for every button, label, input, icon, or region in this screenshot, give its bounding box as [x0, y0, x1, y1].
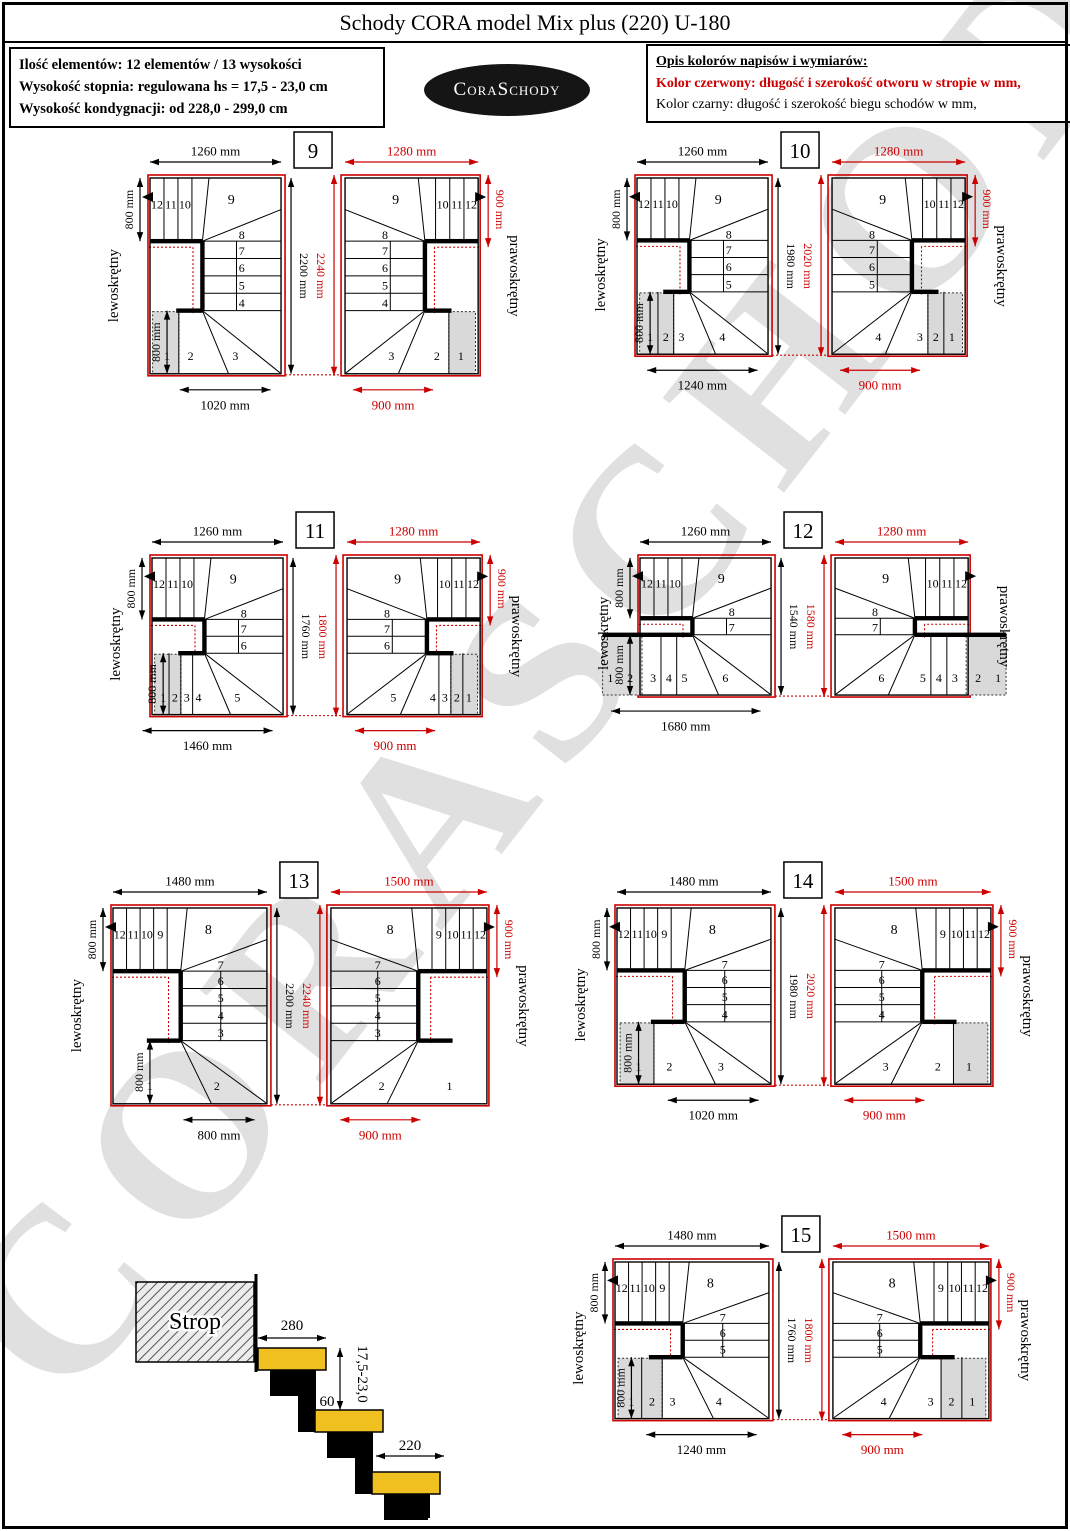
step-number: 2 — [935, 1060, 941, 1074]
entry-steps-shaded — [451, 654, 478, 714]
step-number: 3 — [952, 671, 958, 685]
stair-pair-svg-14: 1211109876541231480 mm800 mm800 mm1020 m… — [567, 860, 1041, 1130]
step-number: 8 — [869, 227, 875, 241]
step-number: 11 — [963, 1281, 975, 1295]
dim-top: 1280 mm — [387, 143, 436, 158]
step-number: 7 — [241, 622, 247, 636]
step-number: 4 — [875, 330, 881, 344]
step-number: 4 — [879, 1007, 885, 1021]
page-title: Schody CORA model Mix plus (220) U-180 — [339, 10, 730, 36]
step-number: 5 — [375, 991, 381, 1005]
step-number: 6 — [375, 974, 381, 988]
step-number: 4 — [430, 690, 436, 704]
step-number: 7 — [729, 621, 735, 635]
step-support — [327, 1430, 371, 1458]
step-number: 6 — [726, 260, 732, 274]
label: 2240 mm — [314, 253, 328, 299]
step-number: 2 — [948, 1394, 954, 1408]
step-number: 10 — [437, 198, 449, 212]
label: prawoskrętny — [508, 596, 524, 678]
step-number: 2 — [454, 690, 460, 704]
pair-number: 15 — [790, 1223, 811, 1247]
step-number: 11 — [165, 198, 177, 212]
step-number: 11 — [128, 928, 140, 942]
step-number: 4 — [382, 296, 388, 310]
dim-top: 1480 mm — [667, 1227, 716, 1242]
step-number: 6 — [720, 1326, 726, 1340]
dim-top: 1280 mm — [877, 523, 926, 538]
step-tread — [315, 1410, 383, 1432]
step-number: 5 — [722, 990, 728, 1004]
label: 800 mm — [145, 663, 159, 703]
step-number: 5 — [720, 1343, 726, 1357]
step-number: 11 — [630, 1281, 642, 1295]
info-box: Ilość elementów: 12 elementów / 13 wysok… — [9, 47, 385, 128]
step-number: 7 — [722, 957, 728, 971]
step-number: 3 — [883, 1060, 889, 1074]
step-number: 8 — [239, 228, 245, 242]
pair-number: 10 — [790, 139, 811, 163]
pair-number: 9 — [308, 139, 319, 163]
dim-60: 60 — [320, 1394, 335, 1410]
step-number: 7 — [382, 244, 388, 258]
label: 800 mm — [632, 303, 646, 343]
step-number: 8 — [205, 923, 212, 938]
entry-steps-shaded — [953, 1023, 987, 1084]
pair-number: 11 — [305, 519, 325, 543]
stair-pair-13: 1211109876543121480 mm800 mm800 mm800 mm… — [63, 860, 537, 1155]
dim-top: 1500 mm — [384, 874, 433, 889]
stair-diagram-right: 1211109876512341280 mm900 mm900 mmprawos… — [828, 144, 1009, 393]
step-number: 3 — [928, 1394, 934, 1408]
dim-top: 1260 mm — [678, 144, 727, 159]
step-number: 4 — [722, 1007, 728, 1021]
step-number: 6 — [877, 1326, 883, 1340]
pair-gap-dims: 1980 mm2020 mm10 — [772, 132, 828, 356]
step-number: 11 — [461, 928, 473, 942]
label: 800 mm — [132, 1052, 146, 1092]
label: lewoskrętny — [596, 596, 612, 670]
label: 1800 mm — [316, 614, 330, 660]
dim-bottom: 900 mm — [861, 1442, 904, 1457]
step-number: 7 — [877, 1310, 883, 1324]
label: 1540 mm — [787, 604, 801, 650]
step-number: 4 — [666, 671, 672, 685]
step-number: 2 — [663, 330, 669, 344]
step-number: 5 — [869, 277, 875, 291]
label: 2200 mm — [283, 983, 297, 1029]
label: 900 mm — [493, 190, 507, 230]
label: 900 mm — [1006, 919, 1020, 959]
step-number: 10 — [179, 198, 191, 212]
step-number: 6 — [218, 974, 224, 988]
step-number: 9 — [879, 193, 886, 208]
stair-pair-11: 1211109876123451260 mm800 mm800 mm1460 m… — [102, 510, 530, 766]
step-number: 7 — [218, 958, 224, 972]
step-number: 2 — [933, 330, 939, 344]
label: prawoskrętny — [506, 235, 522, 317]
stair-diagram-right: 1211109873456121280 mmprawoskrętny — [831, 523, 1012, 697]
step-number: 11 — [965, 927, 977, 941]
step-number: 6 — [722, 671, 728, 685]
label: 800 mm — [124, 568, 138, 608]
label: 800 mm — [587, 1272, 601, 1312]
step-number: 9 — [228, 193, 235, 208]
legend-black-line: Kolor czarny: długość i szerokość biegu … — [656, 94, 1066, 116]
dim-bottom: 1020 mm — [689, 1108, 738, 1123]
stair-diagram-right: 1211109876541231280 mm900 mm900 mmprawos… — [341, 143, 522, 412]
label: 900 mm — [495, 569, 509, 609]
label: 900 mm — [1004, 1273, 1018, 1313]
label: 800 mm — [612, 568, 626, 608]
step-number: 9 — [659, 1281, 665, 1295]
step-number: 9 — [157, 928, 163, 942]
dim-bottom: 900 mm — [863, 1108, 906, 1123]
step-tread — [258, 1348, 326, 1370]
step-number: 8 — [387, 923, 394, 938]
step-number: 3 — [218, 1026, 224, 1040]
step-number: 2 — [172, 690, 178, 704]
step-number: 5 — [877, 1343, 883, 1357]
step-number: 11 — [938, 197, 950, 211]
label: 900 mm — [980, 189, 994, 229]
dim-bottom: 900 mm — [374, 738, 417, 753]
step-number: 10 — [927, 576, 939, 590]
step-number: 3 — [442, 690, 448, 704]
stair-pair-15: 1211109876512341480 mm800 mm800 mm1240 m… — [565, 1214, 1039, 1470]
step-number: 8 — [891, 923, 898, 938]
step-number: 11 — [655, 576, 667, 590]
step-number: 9 — [392, 193, 399, 208]
step-number: 1 — [966, 1060, 972, 1074]
step-number: 10 — [645, 927, 657, 941]
step-number: 3 — [718, 1060, 724, 1074]
step-number: 8 — [872, 605, 878, 619]
dim-top: 1480 mm — [165, 874, 214, 889]
step-number: 2 — [649, 1394, 655, 1408]
step-number: 4 — [218, 1009, 224, 1023]
label: lewoskrętny — [106, 249, 122, 323]
step-number: 9 — [882, 572, 889, 587]
legend-box: Opis kolorów napisów i wymiarów: Kolor c… — [646, 44, 1070, 123]
label: 1580 mm — [804, 604, 818, 650]
step-number: 11 — [451, 198, 463, 212]
step-number: 10 — [666, 197, 678, 211]
step-number: 10 — [924, 197, 936, 211]
step-number: 6 — [869, 260, 875, 274]
stair-pair-12: 1211109873456121260 mm800 mm800 mm1680 m… — [590, 510, 1018, 746]
dim-280: 280 — [281, 1318, 304, 1334]
label: 1980 mm — [787, 973, 801, 1019]
label: 800 mm — [122, 189, 136, 229]
step-number: 5 — [879, 990, 885, 1004]
step-number: 8 — [729, 605, 735, 619]
stair-diagram-right: 1211109876123451280 mm900 mm900 mmprawos… — [343, 523, 524, 753]
dim-top: 1260 mm — [193, 523, 242, 538]
pair-number: 13 — [288, 869, 309, 893]
step-number: 3 — [650, 671, 656, 685]
stair-pair-10: 1211109876512341260 mm800 mm800 mm1240 m… — [587, 130, 1015, 405]
step-number: 7 — [879, 957, 885, 971]
step-number: 3 — [184, 690, 190, 704]
pair-number: 12 — [793, 519, 814, 543]
step-number: 5 — [726, 277, 732, 291]
entry-steps-shaded — [449, 312, 476, 374]
step-number: 7 — [375, 958, 381, 972]
label: 800 mm — [612, 644, 626, 684]
label: 2200 mm — [297, 253, 311, 299]
dim-top: 1500 mm — [886, 1227, 935, 1242]
step-number: 8 — [241, 606, 247, 620]
dim-top: 1280 mm — [389, 523, 438, 538]
step-number: 5 — [390, 690, 396, 704]
label: prawoskrętny — [1019, 955, 1035, 1037]
step-number: 8 — [726, 227, 732, 241]
step-number: 3 — [917, 330, 923, 344]
step-number: 1 — [446, 1079, 452, 1093]
dim-220: 220 — [399, 1438, 422, 1454]
step-number: 5 — [920, 671, 926, 685]
step-number: 5 — [218, 991, 224, 1005]
label: 800 mm — [149, 322, 163, 362]
pair-gap-dims: 1760 mm1800 mm15 — [773, 1216, 829, 1421]
title-bar: Schody CORA model Mix plus (220) U-180 — [5, 5, 1065, 43]
step-number: 10 — [447, 928, 459, 942]
label: 1800 mm — [802, 1318, 816, 1364]
step-number: 3 — [679, 330, 685, 344]
entry-steps-shaded — [928, 293, 963, 354]
label: 2020 mm — [804, 973, 818, 1019]
stair-diagram-left: 1211109876512341480 mm800 mm800 mm1240 m… — [571, 1227, 773, 1457]
label: 17,5-23,0 — [354, 1345, 370, 1403]
pair-number: 14 — [792, 869, 813, 893]
label: lewoskrętny — [573, 968, 589, 1042]
label: lewoskrętny — [108, 607, 124, 681]
step-number: 11 — [453, 577, 465, 591]
stair-pair-svg-11: 1211109876123451260 mm800 mm800 mm1460 m… — [102, 510, 530, 761]
stair-pair-svg-10: 1211109876512341260 mm800 mm800 mm1240 m… — [587, 130, 1015, 400]
logo-text: CoraSchody — [454, 79, 561, 101]
step-number: 10 — [181, 577, 193, 591]
step-number: 2 — [188, 349, 194, 363]
pair-gap-dims: 2200 mm2240 mm9 — [285, 132, 341, 376]
legend-red-line: Kolor czerwony: długość i szerokość otwo… — [656, 73, 1066, 95]
label: 800 mm — [589, 919, 603, 959]
step-number: 9 — [715, 193, 722, 208]
label: prawoskrętny — [996, 586, 1012, 668]
pair-gap-dims: 1540 mm1580 mm12 — [775, 512, 831, 697]
label: prawoskrętny — [1017, 1300, 1033, 1382]
step-number: 10 — [643, 1281, 655, 1295]
label: lewoskrętny — [69, 979, 85, 1053]
dim-bottom: 900 mm — [859, 378, 902, 393]
step-number: 8 — [709, 923, 716, 938]
label: 1980 mm — [784, 243, 798, 289]
step-number: 11 — [652, 197, 664, 211]
stair-diagram-left: 1211109876541231260 mm800 mm800 mm1020 m… — [106, 143, 285, 412]
step-number: 9 — [938, 1281, 944, 1295]
label: 800 mm — [85, 919, 99, 959]
step-number: 9 — [394, 573, 401, 588]
pair-gap-dims: 1760 mm1800 mm11 — [287, 512, 343, 717]
step-number: 7 — [726, 243, 732, 257]
stair-diagram-left: 1211109876541231480 mm800 mm800 mm1020 m… — [573, 874, 775, 1123]
logo: CoraSchody — [424, 64, 590, 116]
label: 1760 mm — [299, 614, 313, 660]
dim-bottom: 1460 mm — [183, 738, 232, 753]
label: 800 mm — [613, 1367, 627, 1407]
stair-pair-svg-13: 1211109876543121480 mm800 mm800 mm800 mm… — [63, 860, 537, 1150]
step-number: 10 — [141, 928, 153, 942]
step-number: 7 — [869, 243, 875, 257]
dim-bottom: 1240 mm — [677, 1442, 726, 1457]
stair-diagram-left: 1211109873456121260 mm800 mm800 mm1680 m… — [596, 523, 775, 733]
dim-bottom: 800 mm — [198, 1127, 241, 1142]
dim-bottom: 900 mm — [359, 1127, 402, 1142]
pair-gap-dims: 1980 mm2020 mm14 — [775, 862, 831, 1086]
step-number: 10 — [439, 577, 451, 591]
label: 2240 mm — [300, 983, 314, 1029]
label: prawoskrętny — [993, 225, 1009, 307]
stair-pair-14: 1211109876541231480 mm800 mm800 mm1020 m… — [567, 860, 1041, 1135]
dim-top: 1260 mm — [681, 523, 730, 538]
step-number: 4 — [239, 296, 245, 310]
dim-bottom: 1020 mm — [200, 397, 249, 412]
step-number: 3 — [232, 349, 238, 363]
info-line-step-height: Wysokość stopnia: regulowana hs = 17,5 -… — [19, 77, 375, 99]
stair-pair-9: 1211109876541231260 mm800 mm800 mm1020 m… — [100, 130, 528, 425]
stair-pair-svg-9: 1211109876541231260 mm800 mm800 mm1020 m… — [100, 130, 528, 420]
stair-diagram-right: 1211109876543121500 mm900 mm900 mmprawos… — [327, 874, 531, 1143]
step-number: 9 — [661, 927, 667, 941]
stair-section-drawing: Strop2806017,5-23,0220 — [108, 1252, 508, 1529]
step-number: 3 — [375, 1026, 381, 1040]
legend-heading: Opis kolorów napisów i wymiarów: — [656, 51, 1066, 73]
step-number: 10 — [951, 927, 963, 941]
step-number: 1 — [995, 671, 1001, 685]
dim-top: 1280 mm — [874, 144, 923, 159]
step-tread — [372, 1472, 440, 1494]
step-number: 2 — [379, 1079, 385, 1093]
step-number: 8 — [707, 1277, 714, 1292]
step-number: 10 — [949, 1281, 961, 1295]
label: 800 mm — [621, 1033, 635, 1073]
label: lewoskrętny — [571, 1311, 587, 1385]
step-number: 5 — [682, 671, 688, 685]
step-number: 9 — [230, 573, 237, 588]
step-support — [384, 1492, 428, 1520]
step-number: 6 — [879, 973, 885, 987]
step-number: 5 — [382, 279, 388, 293]
dim-top: 1480 mm — [669, 874, 718, 889]
info-line-storey-height: Wysokość kondygnacji: od 228,0 - 299,0 c… — [19, 99, 375, 121]
step-number: 8 — [889, 1277, 896, 1292]
stair-diagram-right: 1211109876512341500 mm900 mm900 mmprawos… — [829, 1227, 1033, 1457]
step-number: 6 — [722, 973, 728, 987]
step-number: 2 — [975, 671, 981, 685]
section-svg: Strop2806017,5-23,0220 — [108, 1252, 508, 1524]
dim-bottom: 1240 mm — [678, 378, 727, 393]
step-support — [270, 1368, 314, 1396]
step-number: 3 — [669, 1394, 675, 1408]
step-number: 4 — [881, 1394, 887, 1408]
stair-diagram-left: 1211109876543121480 mm800 mm800 mm800 mm… — [69, 874, 271, 1143]
step-number: 2 — [214, 1079, 220, 1093]
info-line-elements: Ilość elementów: 12 elementów / 13 wysok… — [19, 55, 375, 77]
step-number: 5 — [239, 279, 245, 293]
label: 1760 mm — [785, 1318, 799, 1364]
step-number: 7 — [720, 1310, 726, 1324]
page: CORASCHODY Schody CORA model Mix plus (2… — [0, 0, 1070, 1531]
step-number: 1 — [949, 330, 955, 344]
entry-steps-shaded — [941, 1358, 986, 1418]
step-number: 2 — [666, 1060, 672, 1074]
step-number: 6 — [241, 639, 247, 653]
step-number: 11 — [941, 576, 953, 590]
step-number: 5 — [234, 690, 240, 704]
stair-diagram-left: 1211109876512341260 mm800 mm800 mm1240 m… — [593, 144, 772, 393]
step-number: 8 — [384, 606, 390, 620]
step-number: 1 — [458, 349, 464, 363]
step-number: 11 — [167, 577, 179, 591]
label: prawoskrętny — [515, 965, 531, 1047]
stair-pair-svg-15: 1211109876512341480 mm800 mm800 mm1240 m… — [565, 1214, 1039, 1465]
step-number: 6 — [384, 639, 390, 653]
step-number: 1 — [466, 690, 472, 704]
dim-bottom: 1680 mm — [661, 719, 710, 734]
step-number: 6 — [878, 671, 884, 685]
step-number: 2 — [434, 349, 440, 363]
step-number: 3 — [388, 349, 394, 363]
step-number: 4 — [719, 330, 725, 344]
stair-diagram-right: 1211109876541231500 mm900 mm900 mmprawos… — [831, 874, 1035, 1123]
step-number: 10 — [669, 576, 681, 590]
step-number: 1 — [969, 1394, 975, 1408]
label: 900 mm — [502, 920, 516, 960]
label: 800 mm — [609, 189, 623, 229]
dim-top: 1500 mm — [888, 874, 937, 889]
step-number: 6 — [382, 261, 388, 275]
step-number: 7 — [384, 622, 390, 636]
step-number: 7 — [239, 244, 245, 258]
step-number: 4 — [375, 1009, 381, 1023]
dim-top: 1260 mm — [191, 143, 240, 158]
step-number: 9 — [940, 927, 946, 941]
step-number: 11 — [632, 927, 644, 941]
step-number: 4 — [716, 1394, 722, 1408]
stair-diagram-left: 1211109876123451260 mm800 mm800 mm1460 m… — [108, 523, 287, 753]
step-number: 7 — [872, 621, 878, 635]
label: 2020 mm — [801, 243, 815, 289]
pair-gap-dims: 2200 mm2240 mm13 — [271, 862, 327, 1106]
step-number: 9 — [436, 928, 442, 942]
stair-pair-svg-12: 1211109873456121260 mm800 mm800 mm1680 m… — [590, 510, 1018, 741]
step-number: 6 — [239, 261, 245, 275]
dim-bottom: 900 mm — [372, 397, 415, 412]
strop-label: Strop — [169, 1309, 221, 1335]
step-number: 8 — [382, 228, 388, 242]
label: lewoskrętny — [593, 238, 609, 312]
step-number: 9 — [718, 572, 725, 587]
step-number: 4 — [196, 690, 202, 704]
step-number: 4 — [936, 671, 942, 685]
